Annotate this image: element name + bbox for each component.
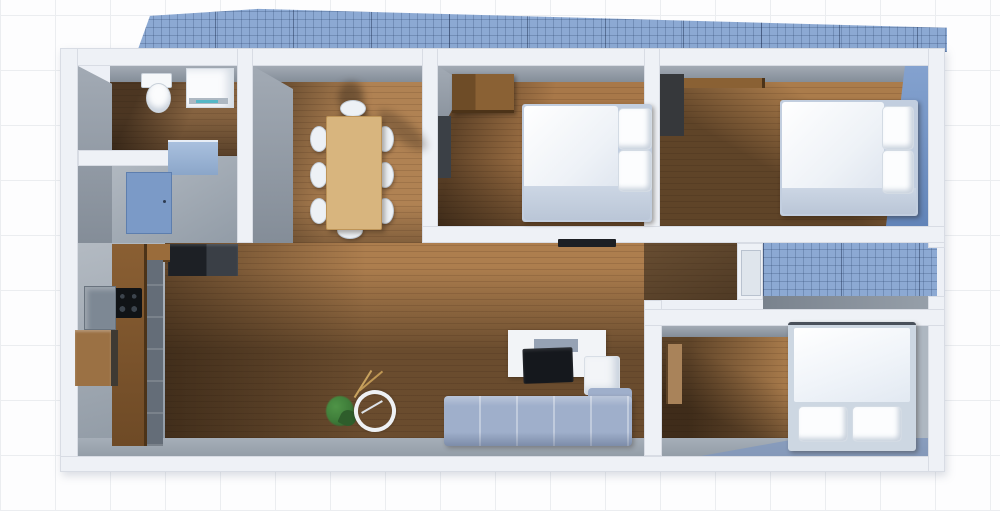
dining-chair[interactable]: [340, 100, 366, 117]
bedroom2-wall-shelf[interactable]: [684, 78, 765, 88]
cooktop[interactable]: [114, 288, 142, 318]
dining-north-wall-face: [253, 66, 422, 82]
bedroom3-pillow: [852, 406, 902, 442]
bedroom1-pillow: [618, 108, 652, 150]
kitchen-cabinet-side: [147, 260, 163, 446]
sofa[interactable]: [444, 396, 632, 446]
outer-wall-top: [60, 48, 945, 66]
wall-tv[interactable]: [558, 239, 616, 247]
outer-wall-right-upper: [928, 48, 945, 248]
entry-door[interactable]: [126, 172, 172, 234]
bedroom3-duvet: [794, 328, 910, 402]
outer-wall-left: [60, 48, 78, 472]
bedroom2-wardrobe[interactable]: [660, 74, 684, 136]
dining-west-wall-face: [253, 66, 293, 243]
wall-bathroom-dining: [237, 48, 253, 243]
hallway-exterior-door[interactable]: [741, 250, 761, 296]
kitchen-sink-block[interactable]: [84, 286, 116, 330]
outer-wall-bottom: [60, 456, 945, 472]
fridge[interactable]: [168, 244, 238, 276]
bedroom1-dresser[interactable]: [452, 74, 514, 113]
bedroom2-pillow: [882, 106, 914, 150]
tv[interactable]: [522, 347, 573, 384]
lightwell-wall-face: [763, 296, 945, 309]
toilet-bowl[interactable]: [146, 83, 171, 113]
washing-machine-glass: [196, 100, 218, 103]
bedroom2-duvet: [782, 102, 884, 196]
bedroom2-pillow: [882, 150, 914, 194]
bedroom3-door-open[interactable]: [666, 344, 682, 404]
floor-plan-scene: [0, 0, 1000, 511]
kitchen-wall-shelf[interactable]: [75, 330, 118, 386]
bedroom1-door-open[interactable]: [438, 116, 451, 178]
wall-bedrooms-south: [422, 226, 945, 243]
bedroom3-pillow: [798, 406, 848, 442]
bathroom-vanity[interactable]: [168, 140, 218, 175]
lightwell-grid-surface: [763, 243, 937, 298]
dining-table[interactable]: [326, 116, 382, 230]
entry-door-handle: [163, 200, 166, 203]
bedroom1-pillow: [618, 150, 652, 192]
